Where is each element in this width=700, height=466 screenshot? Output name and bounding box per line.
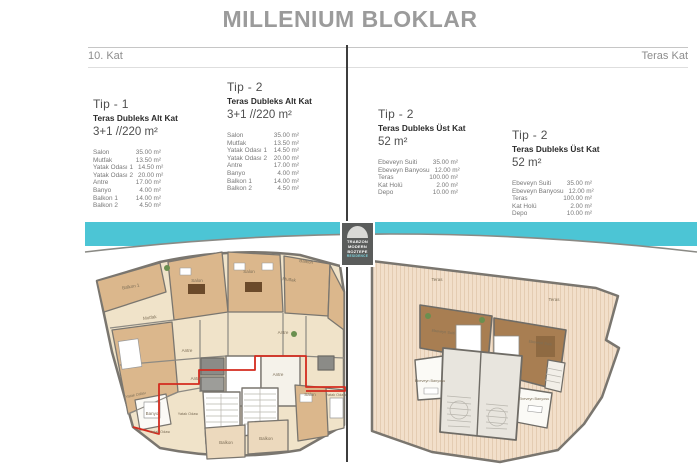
- room-area: 100.00 m²: [563, 195, 592, 203]
- table-row: Ebeveyn Banyosu 12.00 m²: [512, 188, 592, 196]
- room-area: 13.50 m²: [274, 140, 299, 148]
- spec-room-table: Ebeveyn Suiti 35.00 m² Ebeveyn Banyosu 1…: [378, 159, 458, 197]
- brochure-page: MILLENIUM BLOKLAR 10. Kat Teras Kat Tip …: [0, 0, 700, 466]
- room-name: Kat Holü: [512, 203, 542, 211]
- room-name: Salon: [227, 132, 248, 140]
- room-label: Yatak Odası: [150, 430, 171, 434]
- room-label: Antre: [191, 376, 202, 381]
- spec-room-table: Salon 35.00 m² Mutfak 13.50 m² Yatak Oda…: [227, 132, 299, 193]
- project-logo: TRABZON MODERN BOZTEPE RESIDENCE: [340, 221, 375, 267]
- room-area: 4.00 m²: [139, 187, 161, 195]
- room-label: Yatak Odası: [178, 412, 199, 416]
- spec-block-tip1-alt: Tip - 1 Teras Dubleks Alt Kat 3+1 //220 …: [93, 97, 178, 210]
- table-row: Yatak Odası 1 14.50 m²: [227, 147, 299, 155]
- room-name: Banyo: [227, 170, 250, 178]
- spec-room-table: Salon 35.00 m² Mutfak 13.50 m² Yatak Oda…: [93, 149, 161, 210]
- room-name: Teras: [512, 195, 533, 203]
- room-area: 12.00 m²: [569, 188, 594, 196]
- room-label: Ebeveyn Banyosu: [519, 397, 550, 401]
- floor-label-right: Teras Kat: [88, 50, 688, 62]
- logo-line: RESIDENCE: [342, 254, 373, 259]
- spec-type: Tip - 1: [93, 97, 178, 111]
- table-row: Teras 100.00 m²: [378, 174, 458, 182]
- room-area: 35.00 m²: [433, 159, 458, 167]
- room-label: Antre: [182, 348, 193, 353]
- room-label: Banyo: [146, 411, 159, 416]
- room-label: Antre: [273, 372, 284, 377]
- spec-block-tip2-alt: Tip - 2 Teras Dubleks Alt Kat 3+1 //220 …: [227, 80, 312, 193]
- room-area: 4.50 m²: [277, 185, 299, 193]
- room-area: 14.50 m²: [274, 147, 299, 155]
- table-row: Balkon 1 14.00 m²: [227, 178, 299, 186]
- room-label: Teras: [431, 277, 443, 282]
- room-area: 14.00 m²: [136, 195, 161, 203]
- table-row: Depo 10.00 m²: [378, 189, 458, 197]
- table-row: Teras 100.00 m²: [512, 195, 592, 203]
- room-area: 13.50 m²: [136, 157, 161, 165]
- spec-type: Tip - 2: [512, 128, 599, 142]
- room-name: Banyo: [93, 187, 116, 195]
- room-label: Salon: [243, 269, 255, 274]
- table-row: Mutfak 13.50 m²: [93, 157, 161, 165]
- spec-room-table: Ebeveyn Suiti 35.00 m² Ebeveyn Banyosu 1…: [512, 180, 592, 218]
- room-name: Ebeveyn Banyosu: [512, 188, 569, 196]
- room-name: Ebeveyn Suiti: [512, 180, 556, 188]
- room-name: Balkon 1: [93, 195, 123, 203]
- room-name: Mutfak: [227, 140, 251, 148]
- room-name: Teras: [378, 174, 399, 182]
- room-area: 12.00 m²: [435, 167, 460, 175]
- room-label: Ebeveyn Banyosu: [415, 379, 446, 383]
- room-label: Salon: [304, 392, 316, 397]
- room-area: 10.00 m²: [433, 189, 458, 197]
- room-area: 20.00 m²: [138, 172, 163, 180]
- spec-subtitle: Teras Dubleks Alt Kat: [227, 96, 312, 106]
- room-area: 17.00 m²: [136, 179, 161, 187]
- table-row: Salon 35.00 m²: [93, 149, 161, 157]
- room-name: Ebeveyn Banyosu: [378, 167, 435, 175]
- spec-subtitle: Teras Dubleks Üst Kat: [512, 144, 599, 154]
- table-row: Ebeveyn Suiti 35.00 m²: [378, 159, 458, 167]
- table-row: Balkon 2 4.50 m²: [93, 202, 161, 210]
- room-name: Yatak Odası 1: [227, 147, 272, 155]
- table-row: Banyo 4.00 m²: [93, 187, 161, 195]
- table-row: Balkon 1 14.00 m²: [93, 195, 161, 203]
- room-area: 4.00 m²: [277, 170, 299, 178]
- header-rule-bottom: [88, 67, 688, 68]
- spec-size: 52 m²: [512, 157, 599, 169]
- table-row: Mutfak 13.50 m²: [227, 140, 299, 148]
- room-name: Balkon 1: [227, 178, 257, 186]
- spec-type: Tip - 2: [378, 107, 465, 121]
- room-label: Balkon: [219, 440, 233, 445]
- room-name: Balkon 2: [227, 185, 257, 193]
- header-rule-top: [88, 47, 688, 48]
- table-row: Ebeveyn Suiti 35.00 m²: [512, 180, 592, 188]
- table-row: Balkon 2 4.50 m²: [227, 185, 299, 193]
- room-name: Antre: [93, 179, 113, 187]
- room-area: 20.00 m²: [274, 155, 299, 163]
- table-row: Banyo 4.00 m²: [227, 170, 299, 178]
- room-name: Salon: [93, 149, 114, 157]
- spec-type: Tip - 2: [227, 80, 312, 94]
- room-area: 17.00 m²: [274, 162, 299, 170]
- dome-icon: [347, 226, 368, 238]
- page-title: MILLENIUM BLOKLAR: [0, 6, 700, 33]
- room-name: Balkon 2: [93, 202, 123, 210]
- table-row: Kat Holü 2.00 m²: [512, 203, 592, 211]
- room-name: Yatak Odası 2: [93, 172, 138, 180]
- room-name: Antre: [227, 162, 247, 170]
- table-row: Yatak Odası 2 20.00 m²: [227, 155, 299, 163]
- spec-size: 3+1 //220 m²: [93, 126, 178, 138]
- spec-size: 3+1 //220 m²: [227, 109, 312, 121]
- room-area: 35.00 m²: [136, 149, 161, 157]
- spec-subtitle: Teras Dubleks Üst Kat: [378, 123, 465, 133]
- table-row: Antre 17.00 m²: [93, 179, 161, 187]
- room-label: Yatak Odası: [326, 393, 347, 397]
- room-label: Salon: [191, 278, 203, 283]
- room-name: Mutfak: [93, 157, 117, 165]
- room-area: 4.50 m²: [139, 202, 161, 210]
- room-area: 35.00 m²: [274, 132, 299, 140]
- room-label: Antre: [278, 330, 289, 335]
- table-row: Yatak Odası 2 20.00 m²: [93, 172, 161, 180]
- spec-block-tip2-ust-1: Tip - 2 Teras Dubleks Üst Kat 52 m² Ebev…: [378, 107, 465, 197]
- room-label: Balkon: [259, 436, 273, 441]
- room-name: Kat Holü: [378, 182, 408, 190]
- room-area: 35.00 m²: [567, 180, 592, 188]
- room-name: Yatak Odası 2: [227, 155, 272, 163]
- table-row: Yatak Odası 1 14.50 m²: [93, 164, 161, 172]
- room-area: 2.00 m²: [436, 182, 458, 190]
- spec-subtitle: Teras Dubleks Alt Kat: [93, 113, 178, 123]
- table-row: Antre 17.00 m²: [227, 162, 299, 170]
- spec-block-tip2-ust-2: Tip - 2 Teras Dubleks Üst Kat 52 m² Ebev…: [512, 128, 599, 218]
- room-name: Ebeveyn Suiti: [378, 159, 422, 167]
- room-area: 14.50 m²: [138, 164, 163, 172]
- table-row: Kat Holü 2.00 m²: [378, 182, 458, 190]
- room-area: 2.00 m²: [570, 203, 592, 211]
- room-label: Teras: [548, 297, 560, 302]
- floorplan-right: [372, 261, 619, 462]
- room-name: Depo: [378, 189, 398, 197]
- table-row: Ebeveyn Banyosu 12.00 m²: [378, 167, 458, 175]
- table-row: Salon 35.00 m²: [227, 132, 299, 140]
- spec-size: 52 m²: [378, 136, 465, 148]
- room-name: Yatak Odası 1: [93, 164, 138, 172]
- room-area: 100.00 m²: [429, 174, 458, 182]
- room-area: 14.00 m²: [274, 178, 299, 186]
